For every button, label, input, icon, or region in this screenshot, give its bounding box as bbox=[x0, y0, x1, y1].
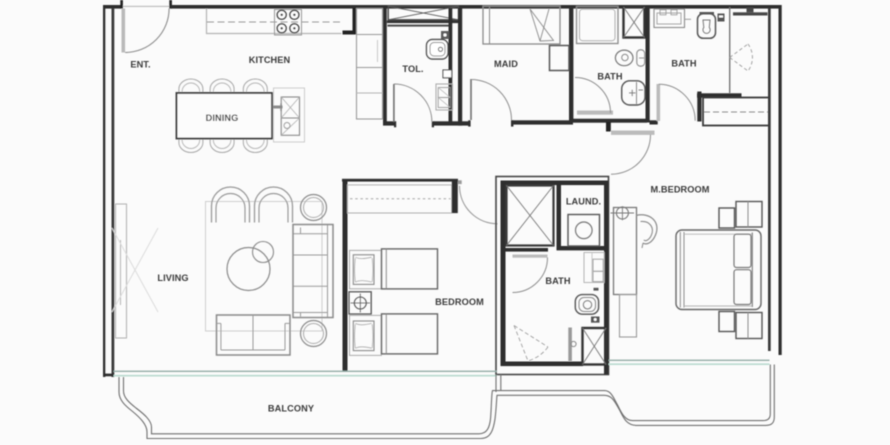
svg-text:BATH: BATH bbox=[597, 72, 622, 82]
svg-text:M.BEDROOM: M.BEDROOM bbox=[650, 184, 709, 194]
svg-text:BALCONY: BALCONY bbox=[268, 404, 314, 414]
svg-text:LIVING: LIVING bbox=[157, 273, 188, 283]
svg-text:MAID: MAID bbox=[494, 59, 518, 69]
svg-text:BATH: BATH bbox=[671, 59, 696, 69]
svg-text:TOL.: TOL. bbox=[402, 64, 423, 74]
svg-text:BEDROOM: BEDROOM bbox=[435, 297, 484, 307]
svg-text:DINING: DINING bbox=[206, 113, 239, 123]
svg-text:BATH: BATH bbox=[545, 276, 570, 286]
svg-text:ENT.: ENT. bbox=[130, 60, 150, 70]
svg-text:LAUND.: LAUND. bbox=[566, 197, 601, 207]
svg-text:KITCHEN: KITCHEN bbox=[249, 55, 291, 65]
